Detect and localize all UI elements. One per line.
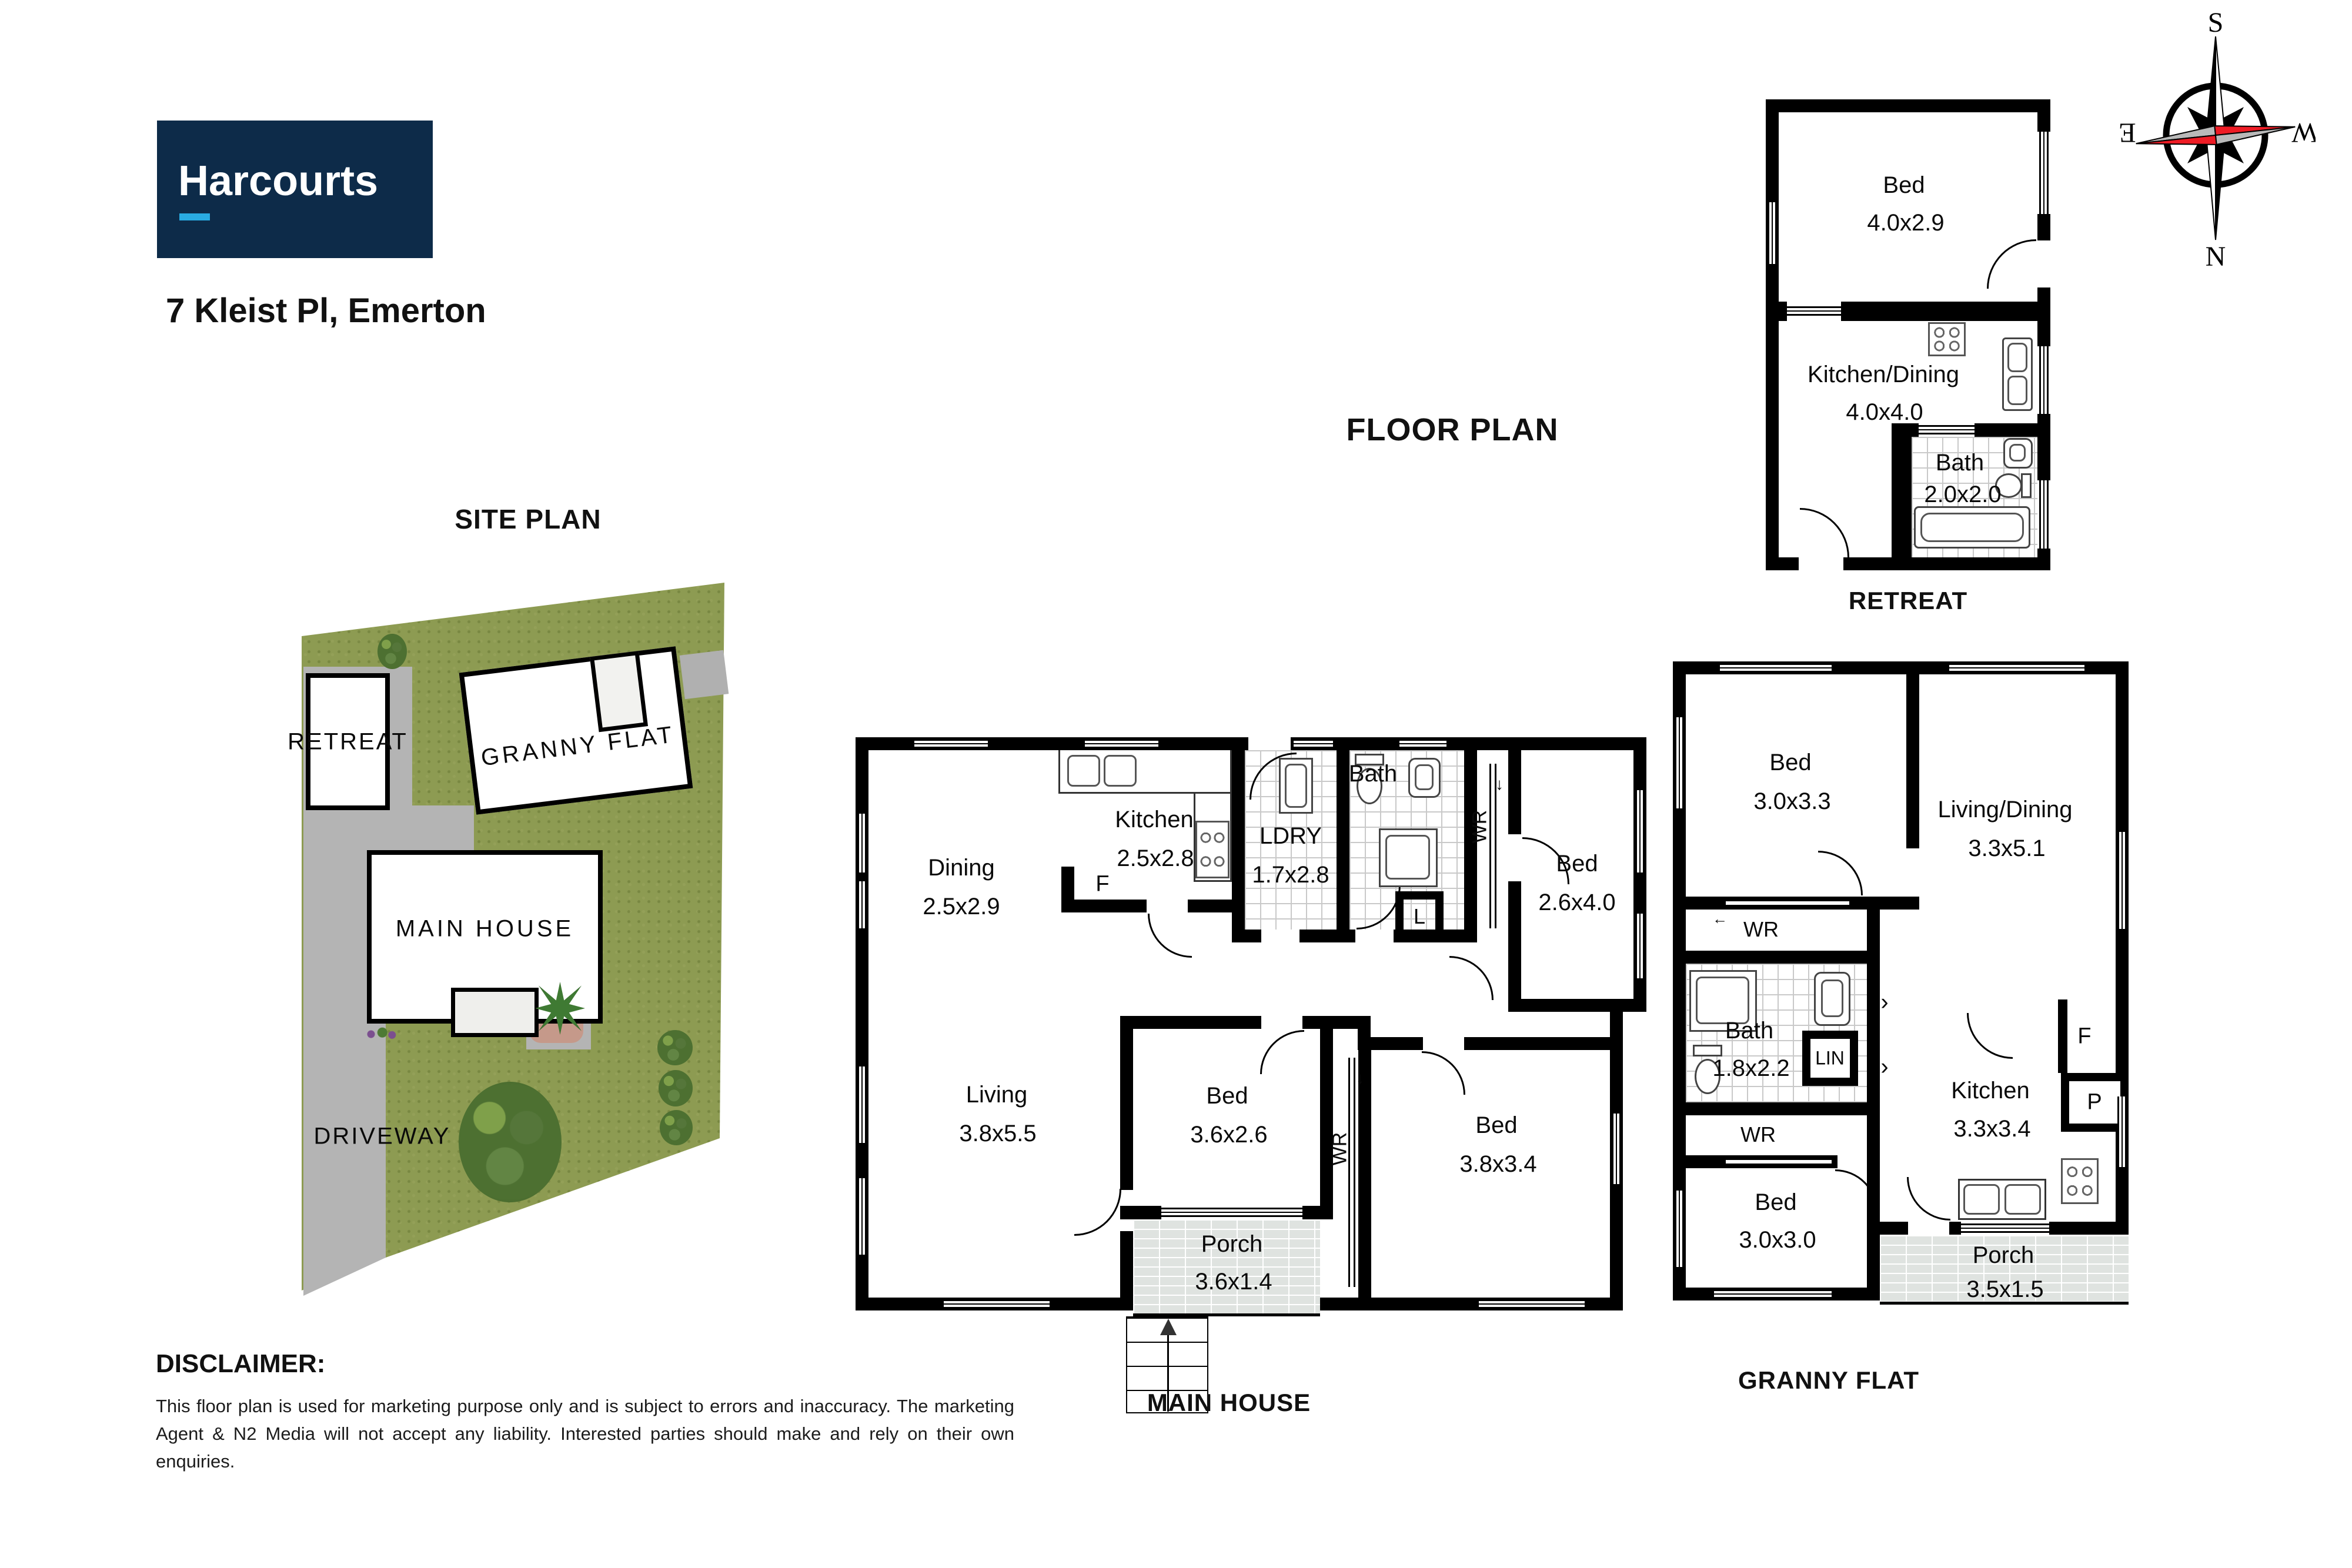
window [1714, 1289, 1832, 1299]
wall [1299, 930, 1355, 942]
wall [1232, 750, 1245, 942]
room-label: Bath [1349, 759, 1397, 788]
wall [2058, 999, 2067, 1073]
site-main-building: MAIN HOUSE [367, 850, 603, 1024]
kitchen-sink-icon [1067, 753, 1141, 789]
window [2039, 346, 2049, 414]
break-mark: › [1880, 1054, 1888, 1081]
wall [1188, 900, 1232, 912]
wall [2049, 1222, 2129, 1235]
room-label: Bed [1556, 849, 1598, 878]
door-arc [1987, 239, 2036, 289]
site-granny-notch [590, 651, 648, 732]
property-address: 7 Kleist Pl, Emerton [166, 291, 486, 330]
wall [1521, 999, 1646, 1012]
stove-icon [2061, 1158, 2099, 1204]
wardrobe-slider [1726, 900, 1849, 907]
room-label: Living/Dining [1937, 795, 2072, 824]
door-arc [1260, 1030, 1304, 1074]
window [1399, 739, 1446, 748]
window [2039, 480, 2049, 549]
room-label: LDRY [1259, 821, 1322, 851]
site-plan-title: SITE PLAN [410, 503, 646, 535]
wall [1766, 99, 2050, 112]
retreat-plan-title: RETREAT [1820, 587, 1996, 615]
site-main-notch [451, 988, 539, 1037]
door-arc [1449, 956, 1494, 1000]
window [1294, 739, 1333, 748]
window [857, 814, 867, 872]
wall [1291, 737, 1646, 750]
room-dims: 3.3x3.4 [1953, 1114, 2030, 1144]
door-arc [1967, 1013, 2013, 1059]
room-dims: 2.5x2.9 [923, 892, 1000, 921]
window [1787, 306, 1841, 316]
site-granny-label: GRANNY FLAT [480, 721, 676, 771]
window [1479, 1299, 1585, 1309]
window [1675, 1191, 1684, 1267]
bush-top [377, 634, 407, 669]
room-dims: 3.6x2.6 [1190, 1120, 1267, 1149]
wall [1120, 1206, 1161, 1219]
wall [1061, 867, 1074, 912]
wall [1975, 423, 2037, 437]
disclaimer-heading: DISCLAIMER: [156, 1349, 325, 1379]
room-label: Bath [1725, 1016, 1773, 1045]
kitchen-sink-icon [1958, 1179, 2046, 1220]
site-granny-building: GRANNY FLAT [459, 646, 693, 814]
up-arrow-icon [1160, 1319, 1177, 1335]
room-dims: 3.5x1.5 [1966, 1275, 2043, 1304]
site-gray-corner-patch [680, 650, 729, 700]
site-driveway-label: DRIVEWAY [314, 1124, 451, 1150]
arrow-icon: ↓ [1495, 775, 1504, 794]
wall [1232, 930, 1261, 942]
bath-sink-icon [2003, 438, 2033, 469]
room-label: Bed [1755, 1188, 1796, 1217]
bush-right-2 [659, 1070, 693, 1106]
wardrobe-label: WR [1469, 810, 1492, 844]
bush-right-3 [660, 1110, 693, 1145]
arrow-icon: ↓ [1356, 1069, 1364, 1088]
door-arc [1800, 508, 1849, 557]
wardrobe-slider [1726, 1158, 1832, 1165]
wall [1508, 750, 1521, 834]
brand-logo-text: Harcourts [178, 157, 378, 205]
window [2117, 832, 2127, 929]
wall [1867, 897, 1880, 1288]
site-retreat-building: RETREAT [306, 673, 390, 810]
window [1675, 717, 1684, 808]
room-dims: 3.0x3.3 [1753, 787, 1830, 816]
room-label: Dining [928, 853, 994, 882]
wall [1435, 891, 1444, 942]
wall [2037, 99, 2050, 132]
wall [1302, 1206, 1333, 1219]
granny-flat-floor-plan: ← › › Bed 3.0x3.3 Living/Dining 3.3x5.1 … [1673, 661, 2129, 1402]
door-arc [1148, 914, 1192, 958]
room-label: Porch [1201, 1229, 1263, 1259]
room-label: Kitchen [1951, 1076, 2029, 1105]
window [2039, 132, 2049, 214]
window [1085, 739, 1158, 748]
wall [2037, 214, 2050, 240]
compass-north-label: N [2206, 241, 2226, 269]
wall [1120, 1231, 1133, 1298]
room-dims: 2.5x2.8 [1117, 844, 1194, 873]
door-arc [1907, 1177, 1950, 1221]
site-plan: RETREAT GRANNY FLAT MAIN HOUSE DRIVEWAY [294, 547, 729, 1311]
stove-icon [1928, 322, 1966, 356]
floor-plan-title: FLOOR PLAN [1288, 412, 1617, 448]
wall [1766, 99, 1779, 570]
door-arc [1422, 1051, 1465, 1095]
room-label: Bed [1206, 1081, 1248, 1111]
wardrobe-slider [1348, 1058, 1355, 1287]
linen-label: L [1414, 904, 1425, 929]
door-arc [1074, 1189, 1121, 1236]
site-main-label: MAIN HOUSE [396, 915, 574, 942]
room-dims: 4.0x2.9 [1867, 208, 1944, 238]
room-label: Bed [1883, 170, 1925, 200]
brand-logo: Harcourts [157, 121, 433, 258]
wall [2037, 549, 2050, 570]
disclaimer-body: This floor plan is used for marketing pu… [156, 1392, 1014, 1475]
window [1161, 1208, 1302, 1217]
granny-flat-plan-title: GRANNY FLAT [1711, 1366, 1946, 1395]
bathtub-icon [1914, 506, 2030, 549]
wall [1464, 1037, 1623, 1050]
wardrobe-label: WR [1329, 1132, 1352, 1166]
spiky-plant [535, 982, 585, 1035]
room-label: Bed [1475, 1111, 1517, 1140]
shower-icon [1379, 828, 1438, 887]
bath-sink-icon [1408, 758, 1441, 798]
retreat-floor-plan: Bed 4.0x2.9 Kitchen/Dining 4.0x4.0 Bath … [1766, 99, 2050, 570]
room-label: Kitchen/Dining [1808, 360, 1959, 389]
wall [1337, 750, 1349, 942]
wall [1843, 557, 2050, 570]
window [944, 1299, 1050, 1309]
main-house-plan-title: MAIN HOUSE [1111, 1389, 1347, 1417]
break-mark: › [1880, 989, 1888, 1016]
compass-east-label: E [2119, 117, 2136, 148]
window [857, 1178, 867, 1255]
arrow-icon: ← [1712, 910, 1728, 928]
window [1919, 425, 1975, 434]
room-dims: 3.3x5.1 [1968, 834, 2045, 863]
window [1635, 790, 1645, 872]
brand-logo-underline [179, 213, 210, 220]
room-dims: 2.6x4.0 [1538, 888, 1615, 917]
bath-sink-icon [1814, 972, 1850, 1026]
main-house-floor-plan: ↓ ↓ Dining 2.5x2.9 Kitchen 2.5x2.8 F LDR… [856, 737, 1646, 1443]
room-dims: 4.0x4.0 [1846, 397, 1923, 427]
fridge-label: F [2077, 1024, 2091, 1049]
wall [1358, 1037, 1423, 1050]
compass-rose: S N W E [2116, 11, 2316, 269]
lin-label: LIN [1815, 1048, 1845, 1069]
window [857, 881, 867, 928]
kitchen-sink-icon [2002, 337, 2033, 411]
wall [1464, 750, 1477, 942]
window [1635, 914, 1645, 978]
window [857, 1066, 867, 1143]
wardrobe-label: WR [1740, 1122, 1776, 1147]
room-label: Kitchen [1115, 805, 1193, 834]
compass-south-label: S [2208, 11, 2224, 38]
room-label: Living [966, 1080, 1028, 1109]
wall [2037, 414, 2050, 480]
window [1961, 1223, 2049, 1233]
window [1949, 663, 2084, 673]
room-label: Porch [1973, 1241, 2034, 1270]
room-dims: 1.8x2.2 [1712, 1054, 1789, 1083]
window [1768, 202, 1777, 264]
fridge-label: F [1095, 872, 1109, 897]
room-dims: 3.6x1.4 [1195, 1267, 1272, 1296]
flower-bed [365, 1026, 397, 1042]
door-arc [1818, 851, 1863, 895]
wall [1673, 951, 1880, 964]
wall [1766, 302, 1787, 321]
wall [1841, 302, 2050, 321]
wall [1302, 1016, 1358, 1029]
window [1612, 1114, 1621, 1184]
wall [1120, 1016, 1261, 1029]
wall [1673, 1102, 1880, 1115]
wall [1320, 1029, 1333, 1219]
wall [1892, 423, 1912, 557]
stove-icon [1195, 821, 1230, 878]
room-dims: 3.8x3.4 [1459, 1149, 1536, 1179]
compass-west-label: W [2291, 117, 2316, 148]
room-dims: 2.0x2.0 [1924, 480, 2001, 509]
wall [1906, 661, 1919, 848]
room-dims: 3.0x3.0 [1739, 1225, 1816, 1255]
laundry-tub-icon [1279, 758, 1313, 814]
wall [1120, 1016, 1133, 1190]
window [1720, 663, 1832, 673]
wardrobe-label: WR [1743, 917, 1779, 942]
bush-right-1 [657, 1030, 693, 1065]
wall [1766, 557, 1799, 570]
wall [1508, 881, 1521, 1012]
room-label: Bed [1769, 748, 1811, 777]
room-label: Bath [1936, 448, 1984, 477]
pantry-label: P [2087, 1090, 2102, 1115]
wall [1949, 1222, 1961, 1235]
window [2117, 1096, 2127, 1167]
site-retreat-label: RETREAT [288, 728, 408, 755]
window [914, 739, 988, 748]
large-tree [459, 1082, 562, 1202]
room-dims: 3.8x5.5 [959, 1119, 1036, 1148]
room-dims: 1.7x2.8 [1252, 860, 1329, 890]
